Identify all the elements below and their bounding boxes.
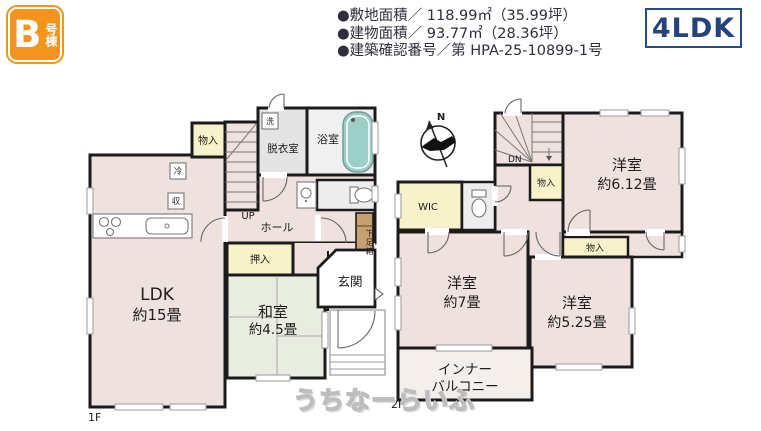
washitsu-size: 約4.5畳 bbox=[249, 322, 297, 338]
shoe-box-label: 下足箱 bbox=[357, 229, 373, 256]
ldk-size: 約15畳 bbox=[132, 306, 181, 324]
spec-line-building-area: ●建物面積／ 93.77㎡（28.36坪） bbox=[337, 26, 603, 44]
floor-plan-2f: N 洋室 約6.12畳 洋室 約7畳 洋室 約5.25畳 WIC 物入 物入 イ… bbox=[391, 99, 685, 411]
spec-line-confirmation-number: ●建築確認番号／第 HPA-25-10899-1号 bbox=[337, 43, 603, 61]
vanity-icon bbox=[297, 182, 316, 208]
building-badge-suffix: 号棟 bbox=[44, 23, 57, 47]
property-specs: ●敷地面積／ 118.99㎡（35.99坪） ●建物面積／ 93.77㎡（28.… bbox=[337, 8, 603, 61]
bath-label: 浴室 bbox=[317, 132, 339, 146]
west2-size: 約7畳 bbox=[444, 295, 481, 311]
west2-name: 洋室 bbox=[447, 274, 477, 292]
dressing-label: 脱衣室 bbox=[267, 142, 299, 155]
west1-name: 洋室 bbox=[612, 156, 642, 174]
toilet-icon-1f bbox=[350, 187, 373, 203]
room-ldk bbox=[90, 155, 225, 407]
closet-top-label: 物入 bbox=[198, 134, 218, 147]
entrance-label: 玄関 bbox=[337, 274, 362, 289]
balcony-line2: バルコニー bbox=[431, 379, 498, 395]
washitsu-name: 和室 bbox=[258, 303, 288, 321]
storage-label: 収 bbox=[172, 196, 181, 207]
closet-2f-b-label: 物入 bbox=[586, 242, 604, 254]
west3-size: 約5.25畳 bbox=[547, 315, 606, 331]
toilet-icon-2f bbox=[472, 190, 486, 217]
floor-plan-1f: LDK 約15畳 和室 約4.5畳 物入 押入 脱衣室 浴室 ホール 玄関 冷 … bbox=[87, 94, 385, 424]
hall-label: ホール bbox=[261, 221, 294, 234]
stairs-up bbox=[225, 122, 258, 210]
front-door-mark bbox=[375, 288, 383, 300]
wic-label: WIC bbox=[418, 202, 438, 213]
floor-plan-canvas: LDK 約15畳 和室 約4.5畳 物入 押入 脱衣室 浴室 ホール 玄関 冷 … bbox=[0, 0, 761, 431]
floor2-label: 2F bbox=[391, 398, 404, 411]
layout-badge: 4LDK bbox=[645, 8, 742, 48]
building-badge-letter: B bbox=[13, 16, 41, 53]
stairs-down bbox=[495, 113, 563, 165]
room-west3 bbox=[530, 257, 632, 367]
balcony-line1: インナー bbox=[438, 362, 492, 378]
floor1-label: 1F bbox=[88, 411, 101, 424]
bathtub-icon bbox=[343, 112, 373, 172]
fridge-label: 冷 bbox=[174, 166, 183, 177]
stairs-down-label: DN bbox=[508, 155, 522, 165]
washer-label: 洗 bbox=[266, 116, 274, 126]
ldk-name: LDK bbox=[140, 285, 175, 305]
west3-name: 洋室 bbox=[562, 294, 592, 312]
floor-plan-page: LDK 約15畳 和室 約4.5畳 物入 押入 脱衣室 浴室 ホール 玄関 冷 … bbox=[0, 0, 761, 431]
compass-icon: N bbox=[421, 112, 456, 167]
spec-line-site-area: ●敷地面積／ 118.99㎡（35.99坪） bbox=[337, 8, 603, 26]
kitchen-counter-icon bbox=[93, 214, 192, 238]
building-badge: B 号棟 bbox=[8, 7, 62, 62]
west1-size: 約6.12畳 bbox=[597, 177, 656, 193]
north-label: N bbox=[437, 112, 445, 123]
closet-2f-a-label: 物入 bbox=[537, 177, 555, 189]
oshiire-label: 押入 bbox=[250, 253, 270, 266]
stairs-up-label: UP bbox=[241, 211, 254, 222]
